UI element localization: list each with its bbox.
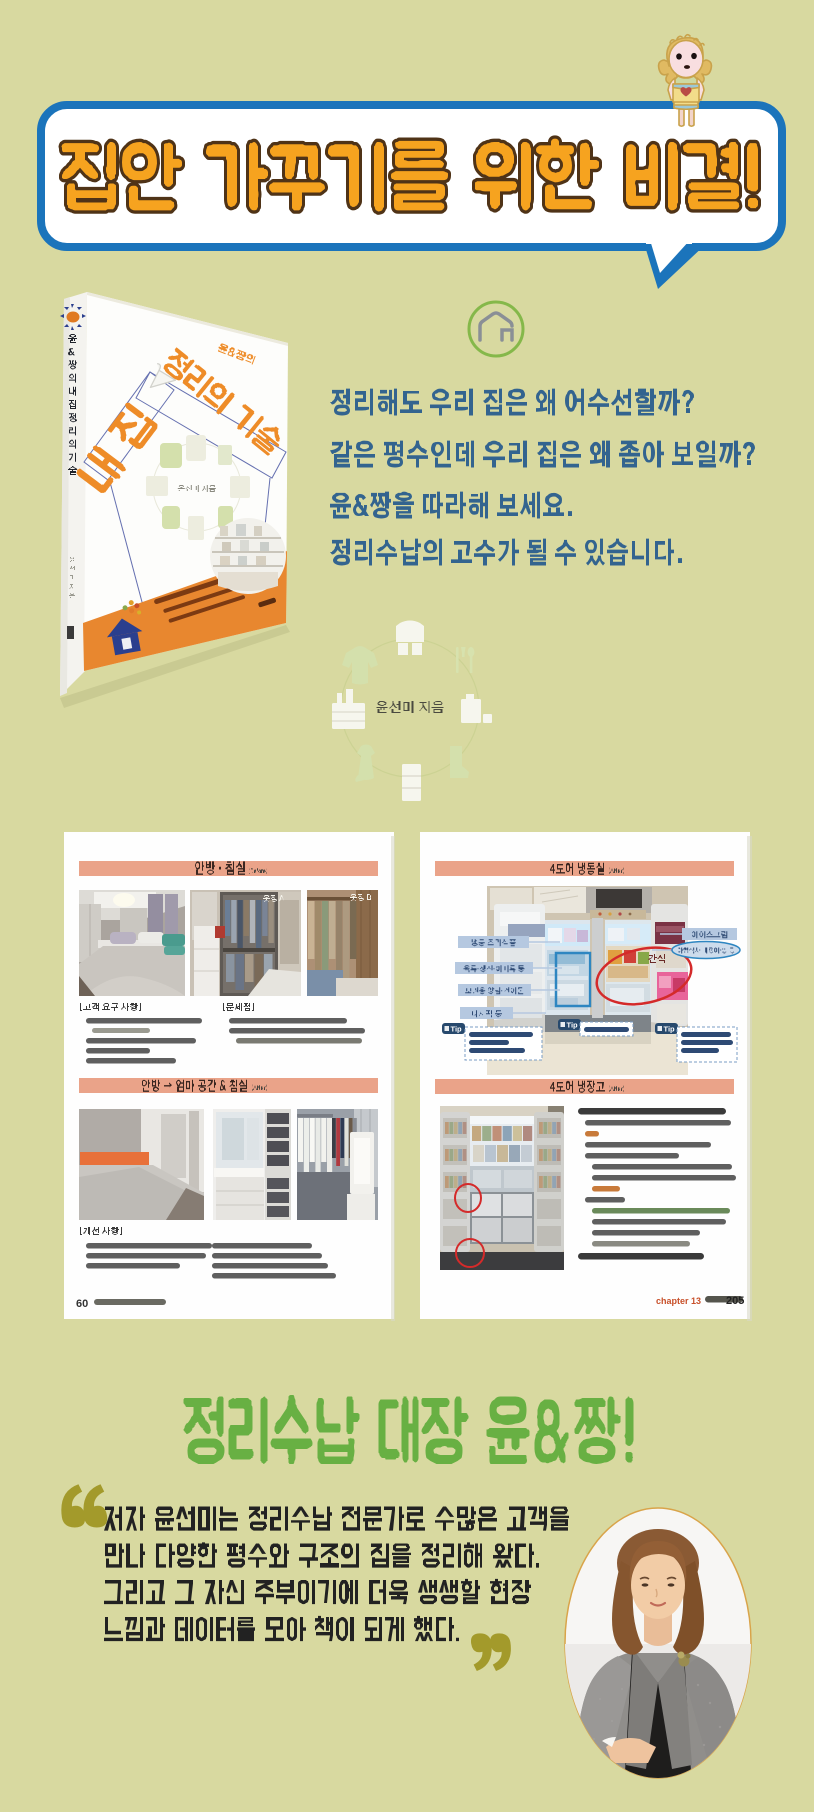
svg-text:chapter 13: chapter 13 — [656, 1296, 701, 1306]
svg-text:205: 205 — [726, 1295, 744, 1307]
svg-text:Tip: Tip — [664, 1025, 676, 1034]
svg-text:Tip: Tip — [451, 1025, 463, 1034]
svg-text:60: 60 — [76, 1298, 88, 1310]
svg-text:Tip: Tip — [567, 1021, 579, 1030]
